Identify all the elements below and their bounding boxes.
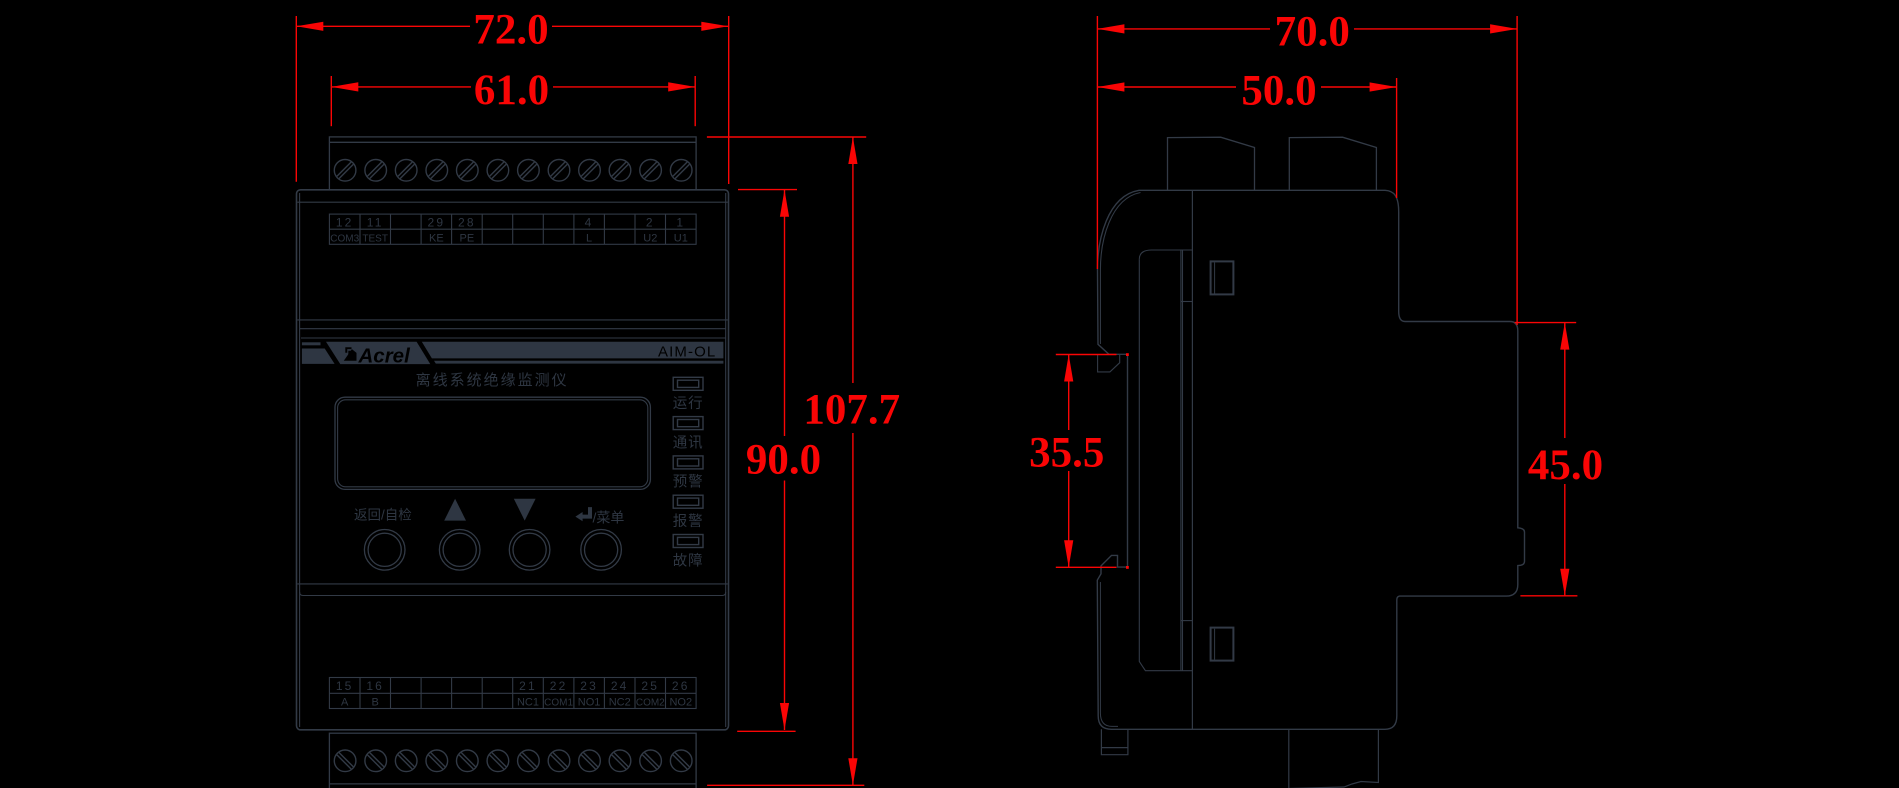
svg-text:35.5: 35.5 <box>1029 430 1104 477</box>
svg-text:COM1: COM1 <box>544 697 573 708</box>
svg-text:28: 28 <box>458 215 476 229</box>
svg-text:A: A <box>341 696 349 708</box>
svg-text:72.0: 72.0 <box>473 7 548 54</box>
svg-text:50.0: 50.0 <box>1241 68 1316 115</box>
svg-text:L: L <box>586 232 592 244</box>
svg-text:45.0: 45.0 <box>1528 442 1603 489</box>
svg-text:COM3: COM3 <box>330 233 359 244</box>
svg-text:离线系统绝缘监测仪: 离线系统绝缘监测仪 <box>416 372 569 389</box>
svg-text:NC1: NC1 <box>517 696 539 708</box>
svg-text:报警: 报警 <box>673 513 704 530</box>
svg-text:KE: KE <box>429 232 444 244</box>
svg-text:故障: 故障 <box>673 551 704 569</box>
svg-text:通讯: 通讯 <box>673 434 704 451</box>
svg-text:返回/自检: 返回/自检 <box>354 508 412 523</box>
svg-text:AIM-OL: AIM-OL <box>658 343 716 360</box>
svg-text:NC2: NC2 <box>609 696 631 708</box>
svg-text:23: 23 <box>580 679 598 693</box>
svg-text:TEST: TEST <box>362 233 388 244</box>
svg-text:16: 16 <box>366 679 384 693</box>
svg-text:24: 24 <box>611 679 629 693</box>
svg-text:25: 25 <box>641 679 659 693</box>
svg-text:U1: U1 <box>674 232 688 244</box>
svg-text:12: 12 <box>336 215 354 229</box>
svg-text:15: 15 <box>336 679 354 693</box>
svg-text:70.0: 70.0 <box>1275 9 1350 56</box>
svg-text:4: 4 <box>585 215 594 229</box>
svg-text:90.0: 90.0 <box>746 437 821 484</box>
svg-text:运行: 运行 <box>673 395 704 412</box>
svg-text:29: 29 <box>428 215 446 229</box>
svg-text:B: B <box>372 696 379 708</box>
svg-text:1: 1 <box>676 215 685 229</box>
svg-text:61.0: 61.0 <box>474 67 549 114</box>
svg-text:11: 11 <box>367 215 384 229</box>
svg-text:22: 22 <box>550 679 568 693</box>
svg-text:U2: U2 <box>643 232 657 244</box>
svg-text:预警: 预警 <box>673 474 704 491</box>
svg-text:21: 21 <box>519 679 537 693</box>
svg-text:2: 2 <box>646 215 655 229</box>
svg-text:NO2: NO2 <box>669 696 692 708</box>
svg-text:PE: PE <box>460 232 475 244</box>
svg-text:26: 26 <box>672 679 690 693</box>
svg-text:/菜单: /菜单 <box>593 510 625 526</box>
svg-text:NO1: NO1 <box>578 696 601 708</box>
svg-text:COM2: COM2 <box>636 697 665 708</box>
svg-text:107.7: 107.7 <box>803 386 900 433</box>
svg-text:Acrel: Acrel <box>358 344 412 367</box>
